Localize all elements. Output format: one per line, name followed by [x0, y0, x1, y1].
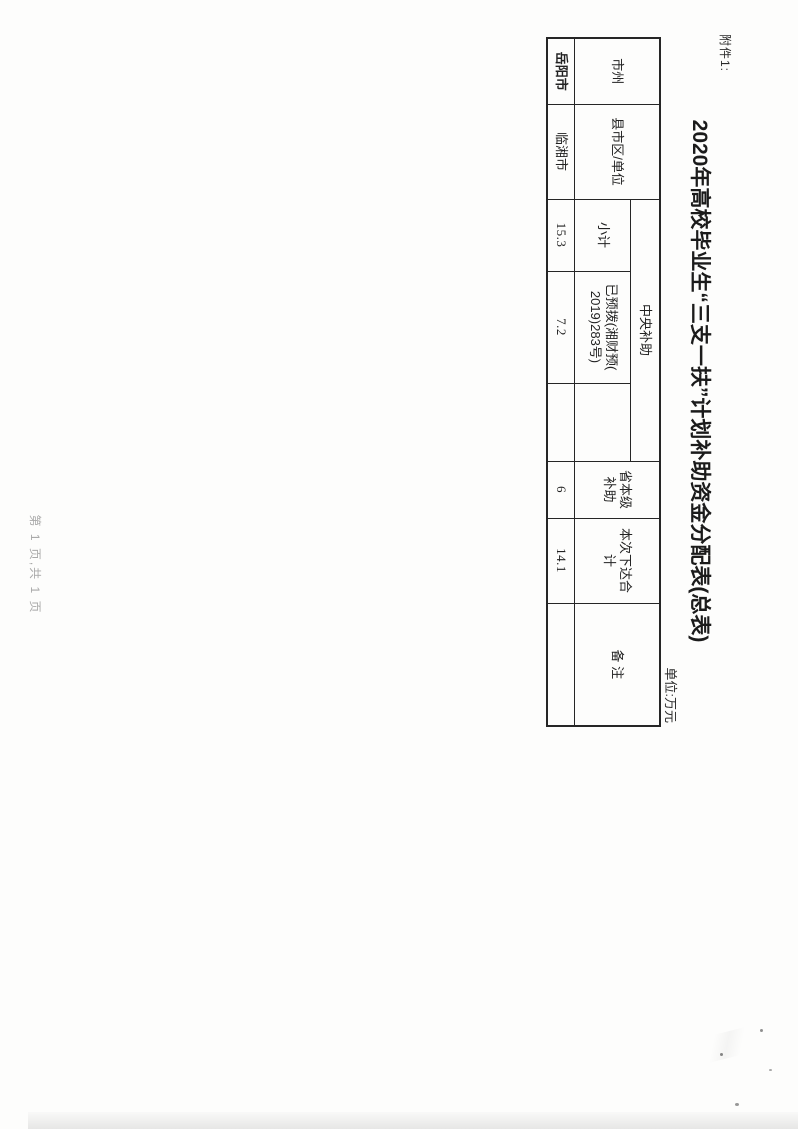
- rotated-landscape-sheet: 附件1: 2020年高校毕业生“三支一扶”计划补助资金分配表(总表) 单位:万元…: [0, 0, 798, 1129]
- data-cell-blank: [547, 383, 575, 461]
- header-cell-county: 县市区/单位: [575, 104, 660, 199]
- table-row: 岳阳市 临湘市 15.3 7.2 6 14.1: [547, 38, 575, 726]
- allocation-table: 市州 县市区/单位 中央补助 省本级 补助 本次下达合 计 备 注 小计 已预拨…: [546, 37, 661, 727]
- scanned-document-page: 附件1: 2020年高校毕业生“三支一扶”计划补助资金分配表(总表) 单位:万元…: [0, 0, 798, 1129]
- data-cell-current-total: 14.1: [547, 518, 575, 603]
- header-cell-subtotal: 小计: [575, 199, 631, 271]
- scan-edge-shadow: [28, 1112, 798, 1129]
- scan-speck: [720, 1053, 723, 1056]
- attachment-label: 附件1:: [717, 34, 734, 72]
- data-cell-pre-allocated: 7.2: [547, 271, 575, 383]
- scan-speck: [760, 1029, 763, 1032]
- data-cell-county: 临湘市: [547, 104, 575, 199]
- header-cell-current-total: 本次下达合 计: [575, 518, 660, 603]
- data-cell-subtotal: 15.3: [547, 199, 575, 271]
- header-cell-central-subsidy-group: 中央补助: [631, 199, 660, 461]
- header-row-1: 市州 县市区/单位 中央补助 省本级 补助 本次下达合 计 备 注: [631, 38, 660, 726]
- data-cell-city: 岳阳市: [547, 38, 575, 104]
- header-cell-blank: [575, 383, 631, 461]
- header-cell-provincial-subsidy: 省本级 补助: [575, 461, 660, 518]
- header-cell-city: 市州: [575, 38, 660, 104]
- page-number-footer: 第 1 页,共 1 页: [27, 0, 44, 1129]
- header-cell-pre-allocated: 已预拨(湘财预( 2019)283号): [575, 271, 631, 383]
- header-cell-remarks: 备 注: [575, 603, 660, 726]
- data-cell-provincial: 6: [547, 461, 575, 518]
- unit-label: 单位:万元: [662, 37, 681, 723]
- scan-speck: [769, 1069, 772, 1071]
- scan-speck: [735, 1103, 739, 1106]
- data-cell-remarks: [547, 603, 575, 726]
- document-title: 2020年高校毕业生“三支一扶”计划补助资金分配表(总表): [686, 37, 716, 725]
